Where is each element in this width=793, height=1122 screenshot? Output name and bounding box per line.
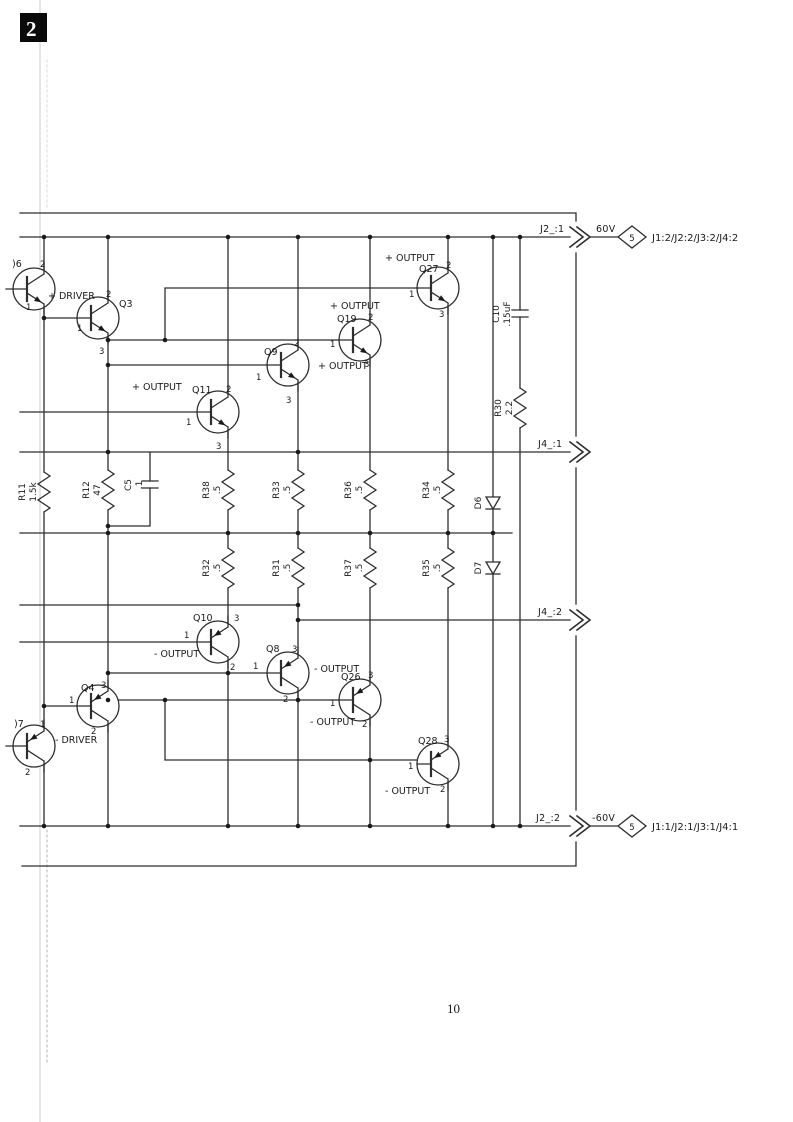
junction-dot [226, 235, 231, 240]
junction-dot [296, 618, 301, 623]
transistor-q26-role: - OUTPUT [310, 717, 355, 728]
transistor-q27-pin3: 3 [439, 310, 444, 320]
transistor-q28-pin3: 3 [444, 735, 449, 745]
junction-dot [296, 824, 301, 829]
resistor-r33-value: .5 [283, 486, 293, 495]
junction-dot [491, 531, 496, 536]
resistor-r32-ref: R32 [202, 559, 212, 577]
schematic-canvas: R11 1.5k R12 47 C5 .1 R38 .5 R33 .5 R36 … [0, 0, 793, 1122]
transistor-q11-pin1: 1 [186, 418, 191, 428]
resistor-r30-value: 2.2 [505, 401, 515, 415]
transistor-q3-ref: Q3 [119, 299, 133, 310]
net-label-j2-2: J2_:2 [535, 813, 560, 824]
schematic-page: R11 1.5k R12 47 C5 .1 R38 .5 R33 .5 R36 … [0, 0, 793, 1122]
transistor-q28: Q28312- OUTPUT [385, 735, 459, 797]
transistor-q9-pin2: 2 [294, 339, 299, 349]
transistor-q10-pin3: 3 [234, 614, 239, 624]
resistor-r30-ref: R30 [494, 399, 504, 417]
junction-dot [106, 524, 111, 529]
resistor-r38-ref: R38 [202, 481, 212, 499]
junction-dot [296, 450, 301, 455]
resistor-symbol [364, 548, 376, 588]
resistor-r33-ref: R33 [272, 481, 282, 499]
transistor-q19-pin2: 2 [368, 313, 373, 323]
capacitor-symbol [512, 310, 528, 317]
transistor-q4-role: - DRIVER [55, 735, 98, 746]
offpage-ref-bottom: 5 [629, 823, 634, 833]
transistor-q8-pin2: 2 [283, 695, 288, 705]
resistor-r11: R11 1.5k [18, 472, 50, 512]
capacitor-c5-value: .1 [135, 481, 145, 490]
transistor-q4: Q4312- DRIVER [55, 680, 119, 746]
destination-label-bottom: J1:1/J2:1/J3:1/J4:1 [651, 822, 738, 833]
transistor-q19-role: + OUTPUT [330, 301, 380, 312]
junction-dot [491, 235, 496, 240]
junction-dot [518, 824, 523, 829]
transistor-q6-ref: )6 [12, 259, 22, 270]
transistor-q10: Q1031- OUTPUT2 [154, 613, 239, 673]
resistor-symbol [222, 548, 234, 588]
diode-d7-ref: D7 [474, 562, 484, 575]
transistor-q10-pin1: 1 [184, 631, 189, 641]
resistor-r36-ref: R36 [344, 481, 354, 499]
resistor-r36-value: .5 [355, 486, 365, 495]
transistor-q9-ref: Q9 [264, 347, 278, 358]
resistor-r12-value: 47 [93, 484, 103, 495]
resistor-symbol [364, 470, 376, 510]
transistor-q6-pin1: 1 [26, 303, 31, 313]
net-connector-j4-1: J4_:1 [537, 439, 590, 462]
transistor-q6-pin2: 2 [40, 260, 45, 270]
transistor-q11-ref: Q11 [192, 385, 212, 396]
junction-dot [42, 316, 47, 321]
junction-dot [446, 824, 451, 829]
voltage-label-bottom: -60V [592, 813, 615, 824]
transistor-q26-pin3: 3 [368, 671, 373, 681]
transistor-q7: )712 [6, 719, 55, 778]
resistor-r37: R37 .5 [344, 548, 376, 588]
transistor-q3-pin3: 3 [99, 347, 104, 357]
transistor-q8-ref: Q8 [266, 644, 280, 655]
junction-dot [368, 758, 373, 763]
resistor-r12: R12 47 [82, 470, 114, 510]
junction-dot [42, 704, 47, 709]
junction-dot [106, 363, 111, 368]
resistor-r11-ref: R11 [18, 483, 28, 501]
resistor-symbol [442, 470, 454, 510]
resistor-r31-ref: R31 [272, 559, 282, 577]
junction-dot [296, 235, 301, 240]
transistor-q7-pin2: 2 [25, 768, 30, 778]
diode-d7: D7 [474, 562, 500, 575]
junction-dot [296, 531, 301, 536]
junction-dot [368, 235, 373, 240]
transistor-q7-pin1: 1 [40, 720, 45, 730]
diode-symbol [486, 497, 500, 509]
net-connector-j2-1: J2_:1 60V 5 J1:2/J2:2/J3:2/J4:2 [539, 224, 738, 248]
resistor-symbol [442, 548, 454, 588]
resistor-r34: R34 .5 [422, 470, 454, 510]
junction-dot [42, 824, 47, 829]
capacitor-c10-ref: C10 [492, 305, 502, 323]
transistor-q26-pin1: 1 [330, 699, 335, 709]
transistor-q3-pin1: 1 [77, 324, 82, 334]
transistor-q11-role: + OUTPUT [132, 382, 182, 393]
transistor-q4-pin1: 1 [69, 696, 74, 706]
diode-symbol [486, 562, 500, 574]
transistor-q19: + OUTPUTQ19213 [330, 301, 381, 370]
transistor-q11-pin2: 2 [226, 385, 231, 395]
resistor-r37-ref: R37 [344, 559, 354, 577]
junction-dot [106, 824, 111, 829]
transistor-q6: )621 [6, 259, 55, 315]
resistor-r34-value: .5 [433, 486, 443, 495]
destination-label-top: J1:2/J2:2/J3:2/J4:2 [651, 233, 738, 244]
transistor-q26-pin2: 2 [362, 720, 367, 730]
transistor-q9-role: + OUTPUT [318, 361, 368, 372]
transistor-q10-ref: Q10 [193, 613, 213, 624]
transistor-q28-pin1: 1 [408, 762, 413, 772]
resistor-r32-value: .5 [213, 564, 223, 573]
junction-dot [106, 698, 111, 703]
transistor-q27-pin1: 1 [409, 290, 414, 300]
junction-dot [106, 671, 111, 676]
junction-dot [446, 531, 451, 536]
resistor-symbol [222, 470, 234, 510]
capacitor-c10-value: .15uF [503, 301, 513, 326]
transistor-q4-pin3: 3 [101, 681, 106, 691]
voltage-label-top: 60V [596, 224, 616, 235]
transistor-q3-role: + DRIVER [48, 291, 95, 302]
junction-dot [446, 235, 451, 240]
junction-dot [296, 698, 301, 703]
resistor-r35-ref: R35 [422, 559, 432, 577]
transistor-q28-role: - OUTPUT [385, 786, 430, 797]
transistor-q11: + OUTPUTQ11213 [132, 382, 239, 452]
transistor-q10-pin2: 2 [230, 663, 235, 673]
junction-dot [491, 824, 496, 829]
transistor-q27-pin2: 2 [446, 261, 451, 271]
transistor-q27: + OUTPUTQ27213 [385, 253, 459, 320]
transistor-q27-role: + OUTPUT [385, 253, 435, 264]
transistor-q3-pin2: 2 [106, 290, 111, 300]
page-number: 10 [447, 1001, 460, 1016]
resistor-r31-value: .5 [283, 564, 293, 573]
transistor-q9-pin1: 1 [256, 373, 261, 383]
resistor-r38: R38 .5 [202, 470, 234, 510]
transistor-q28-pin2: 2 [440, 785, 445, 795]
capacitor-c10: C10 .15uF [492, 301, 528, 326]
resistor-r11-value: 1.5k [29, 481, 39, 501]
junction-dot [518, 235, 523, 240]
junction-dot [226, 824, 231, 829]
net-connector-j2-2: J2_:2 -60V 5 J1:1/J2:1/J3:1/J4:1 [535, 813, 738, 837]
transistor-q11-pin3: 3 [216, 442, 221, 452]
resistor-r12-ref: R12 [82, 481, 92, 499]
transistor-q7-ref: )7 [14, 719, 24, 730]
resistor-symbol [102, 470, 114, 510]
resistor-r38-value: .5 [213, 486, 223, 495]
resistor-r31: R31 .5 [272, 548, 304, 588]
resistor-symbol [514, 388, 526, 428]
junction-dot [42, 235, 47, 240]
transistor-q10-role: - OUTPUT [154, 649, 199, 660]
junction-dot [163, 698, 168, 703]
junction-dot [226, 671, 231, 676]
transistor-q9-pin3: 3 [286, 396, 291, 406]
transistor-q19-pin3: 3 [364, 360, 369, 370]
resistor-r36: R36 .5 [344, 470, 376, 510]
transistor-q3: + DRIVER2Q313 [48, 290, 133, 357]
resistor-r35-value: .5 [433, 564, 443, 573]
junction-dot [368, 824, 373, 829]
capacitor-c5-ref: C5 [124, 479, 134, 491]
transistor-q27-ref: Q27 [419, 264, 439, 275]
transistor-q8-pin1: 1 [253, 662, 258, 672]
transistor-layer: )621+ DRIVER2Q313+ OUTPUTQ11213Q9213+ OU… [6, 253, 459, 797]
transistor-q19-ref: Q19 [337, 314, 357, 325]
resistor-symbol [292, 548, 304, 588]
transistor-q26-ref: Q26 [341, 672, 361, 683]
junction-dot [163, 338, 168, 343]
net-label-j4-2: J4_:2 [537, 607, 562, 618]
resistor-r33: R33 .5 [272, 470, 304, 510]
net-label-j4-1: J4_:1 [537, 439, 562, 450]
junction-dot [106, 235, 111, 240]
junction-dot [106, 450, 111, 455]
capacitor-c5: C5 .1 [124, 479, 158, 491]
transistor-q19-pin1: 1 [330, 340, 335, 350]
offpage-ref-top: 5 [629, 234, 634, 244]
diode-d6-ref: D6 [474, 496, 484, 509]
junction-dot [368, 531, 373, 536]
resistor-r30: R30 2.2 [494, 388, 526, 428]
net-label-j2-1: J2_:1 [539, 224, 564, 235]
junction-dot [106, 338, 111, 343]
resistor-r32: R32 .5 [202, 548, 234, 588]
resistor-r37-value: .5 [355, 564, 365, 573]
diode-d6: D6 [474, 496, 500, 509]
junction-dot [106, 531, 111, 536]
resistor-symbol [292, 470, 304, 510]
junction-dot [226, 531, 231, 536]
resistor-r34-ref: R34 [422, 481, 432, 499]
net-connector-j4-2: J4_:2 [537, 607, 590, 630]
transistor-q8-pin3: 3 [292, 645, 297, 655]
transistor-q28-ref: Q28 [418, 736, 438, 747]
corner-tab-label: 2 [26, 17, 37, 41]
transistor-q4-ref: Q4 [81, 683, 95, 694]
junction-dot [296, 603, 301, 608]
resistor-r35: R35 .5 [422, 548, 454, 588]
